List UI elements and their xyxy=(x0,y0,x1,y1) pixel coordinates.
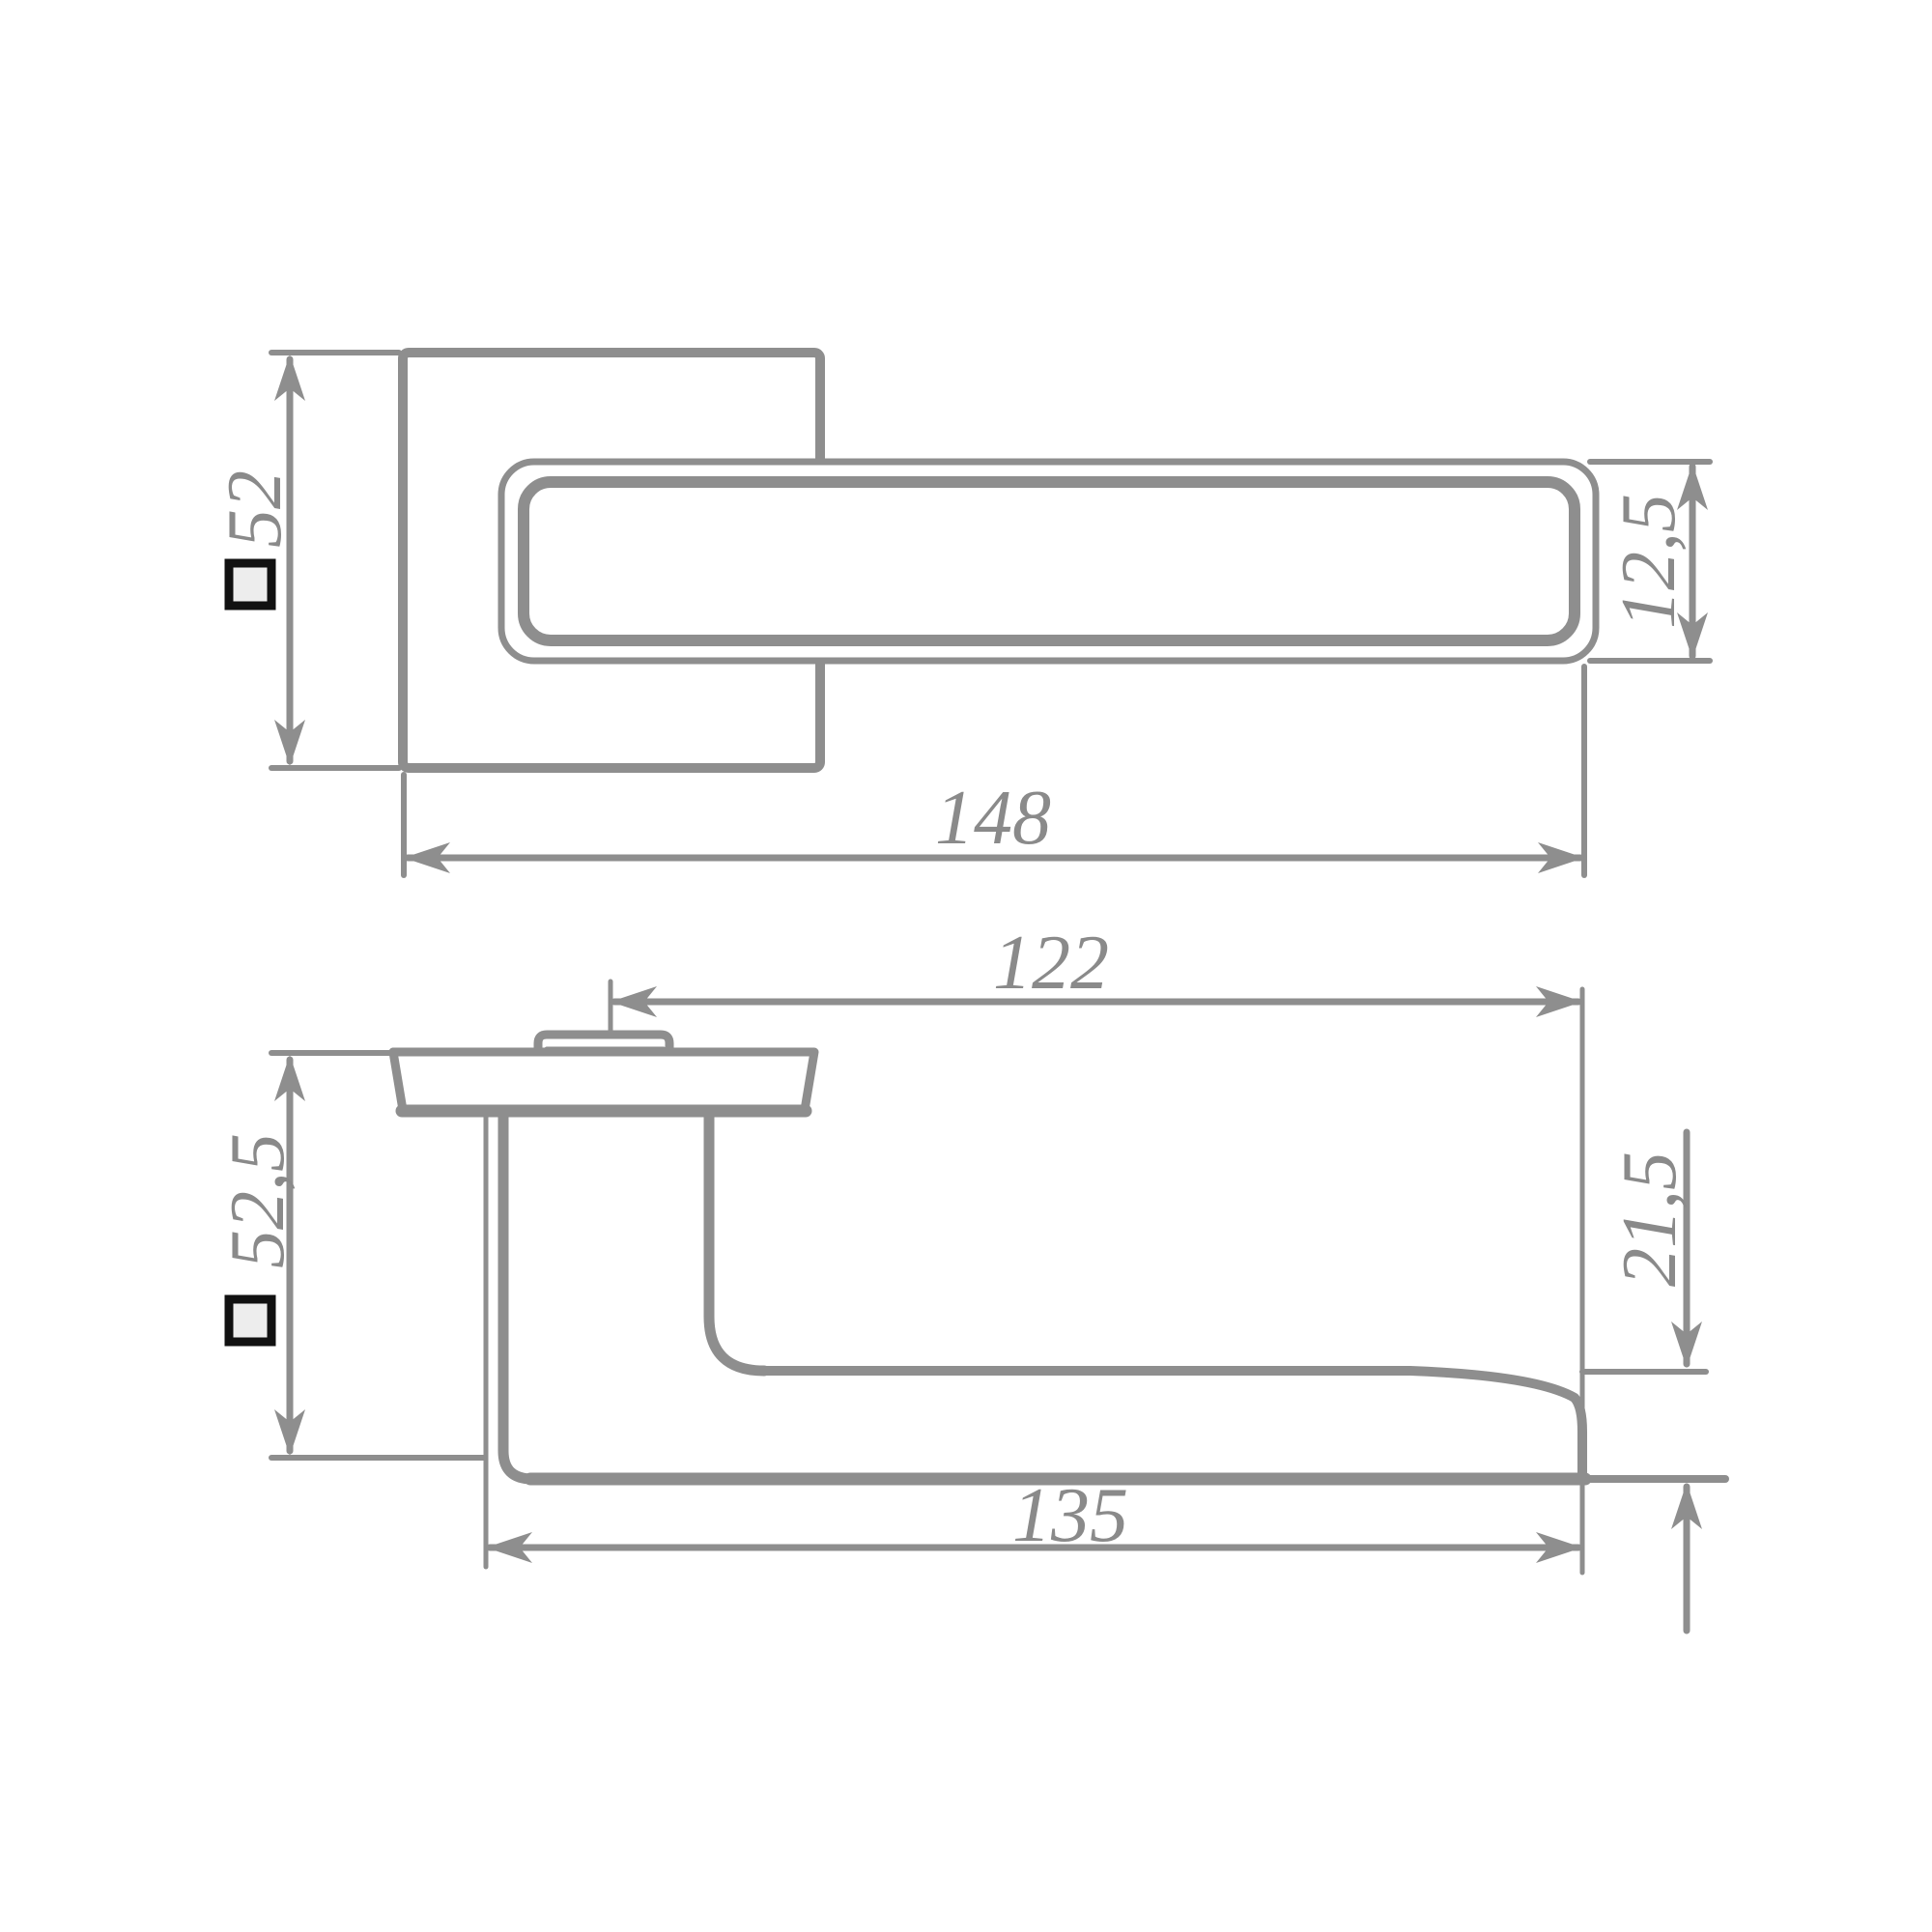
square-section-symbol-icon xyxy=(229,563,271,606)
dim-label-spindle-to-end: 122 xyxy=(993,921,1109,1006)
grip-top-edge xyxy=(764,1371,1582,1475)
face-view: 52 12,5 148 xyxy=(213,353,1710,875)
dim-rosette-size: 52 xyxy=(213,353,399,768)
dim-label-grip-length: 135 xyxy=(1012,1473,1128,1558)
dim-grip-end-thickness: 21,5 xyxy=(1582,1132,1725,1631)
dim-label-overall-length: 148 xyxy=(935,776,1051,861)
technical-drawing: 52 12,5 148 xyxy=(0,0,1932,1932)
dim-label-rosette-size: 52 xyxy=(213,470,298,548)
drawing-canvas: 52 12,5 148 xyxy=(0,0,1932,1932)
dim-label-grip-end-thickness: 21,5 xyxy=(1607,1151,1692,1287)
rosette-plate xyxy=(393,1052,814,1110)
dim-grip-length: 135 xyxy=(486,1113,1582,1567)
neck-right-edge xyxy=(709,1111,764,1371)
dim-label-projection: 52,5 xyxy=(215,1133,300,1268)
neck-left-edge xyxy=(503,1111,532,1479)
dim-lever-width: 12,5 xyxy=(1590,462,1710,661)
lever-bar-outer xyxy=(501,462,1596,661)
square-section-symbol-icon xyxy=(229,1299,271,1342)
profile-view: 122 52,5 21,5 135 xyxy=(215,921,1725,1631)
dim-label-lever-width: 12,5 xyxy=(1606,494,1691,629)
